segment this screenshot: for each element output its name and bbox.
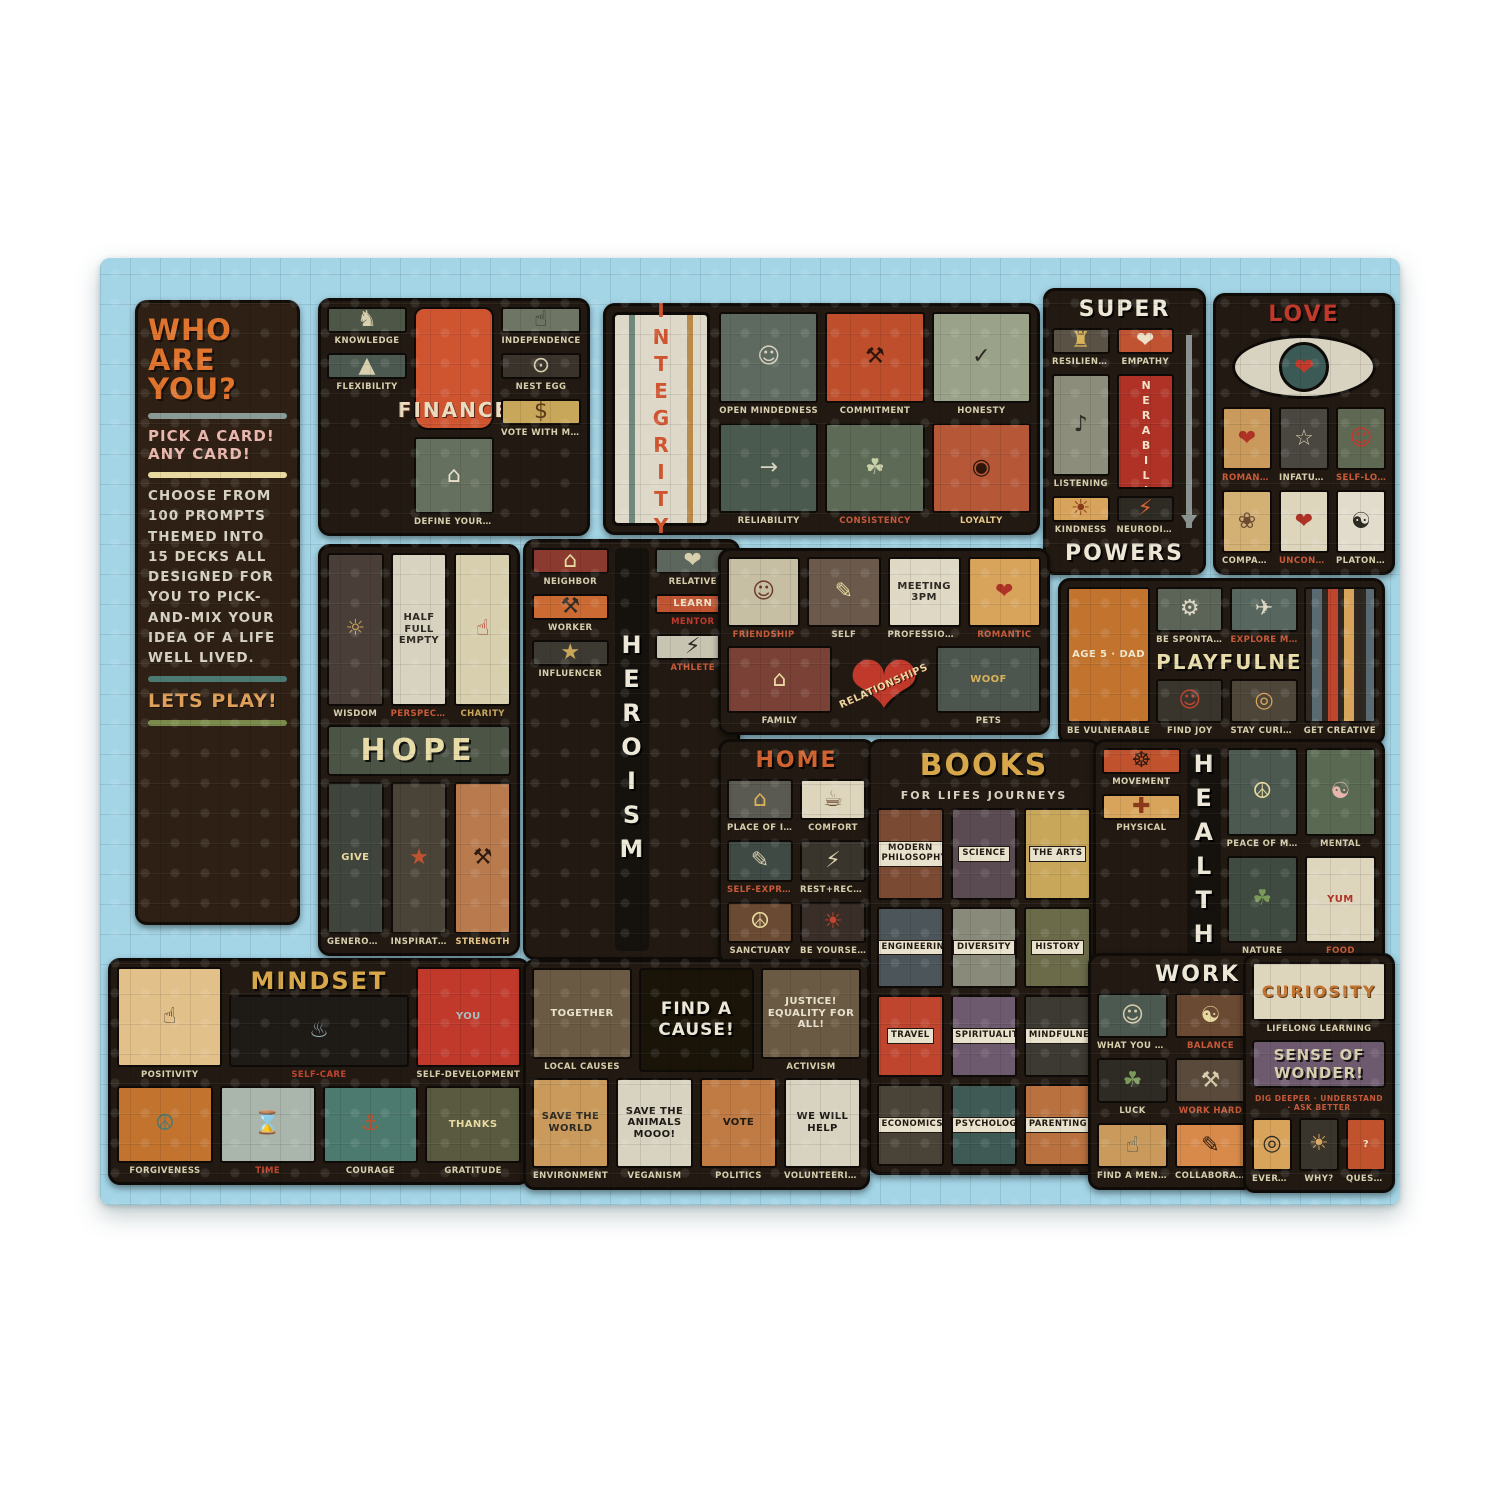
thanks-card: THANKSGRATITUDE — [425, 1086, 521, 1176]
lightbulb-head-icon: ☀ — [1309, 1133, 1329, 1155]
card-label: NEURODIVERSITY — [1117, 522, 1175, 535]
thumbs-up-icon: ☝ — [163, 1006, 176, 1028]
card-label: LOYALTY — [932, 513, 1031, 526]
work-cards: ☺WHAT YOU DO☯BALANCE☘LUCK⚒WORK HARD☝FIND… — [1097, 993, 1246, 1181]
card-text: JUSTICE! EQUALITY FOR ALL! — [763, 994, 859, 1033]
card-art: GIVE — [327, 782, 384, 935]
panel-find-a-cause: TOGETHERLOCAL CAUSES FIND A CAUSE! JUSTI… — [523, 959, 870, 1190]
card-label: TIME — [220, 1163, 316, 1176]
relationships-family-card: ⌂FAMILY — [727, 646, 832, 726]
thumbs-up-badge-icon: ☝ — [501, 307, 581, 333]
two-friends-icon: ☺ — [752, 581, 775, 603]
card-label: BE YOURSELF — [800, 943, 866, 956]
puzzle-title: WHO ARE YOU? — [148, 316, 287, 405]
home-title: HOME — [727, 748, 866, 773]
two-towers-icon: ❀ — [1222, 490, 1272, 553]
you-book-card: YOUSELF-DEVELOPMENT — [416, 967, 521, 1080]
hand-on-heart-icon: ☺ — [1350, 428, 1373, 450]
card: ♞KNOWLEDGE — [327, 307, 407, 346]
card-label: PETS — [936, 713, 1041, 726]
card-art: WE WILL HELP — [784, 1078, 861, 1169]
card-label: COMMITMENT — [825, 403, 924, 416]
heart-couple-icon: ❤ — [968, 557, 1041, 627]
card-label: HONESTY — [932, 403, 1031, 416]
candle-window-icon: ☮ — [1252, 781, 1272, 803]
roller-skate-icon: ⚙ — [1156, 587, 1223, 632]
heroism-title: HEROISM — [615, 548, 649, 951]
card: ☺WHAT YOU DO — [1097, 993, 1168, 1051]
crayons-icon — [1304, 587, 1376, 723]
card-label: QUESTIONS — [1346, 1171, 1386, 1184]
card-label: SANCTUARY — [727, 943, 793, 956]
integrity-cards: ☺OPEN MINDEDNESS⚒COMMITMENT✓HONESTY→RELI… — [719, 312, 1031, 526]
card: ☀BE YOURSELF — [800, 902, 866, 956]
anatomy-icon: ✚ — [1102, 794, 1181, 820]
hug-icon: ❤ — [684, 550, 702, 572]
creature-icon: ♞ — [327, 307, 407, 333]
clover-icon: ☘ — [1123, 1070, 1143, 1092]
card: ❤ROMANTIC — [1222, 407, 1272, 483]
heart-icon: ❤ — [1117, 328, 1175, 354]
card-label: BALANCE — [1175, 1038, 1246, 1051]
panel-curiosity: CURIOSITY LIFELONG LEARNING SENSE OF WON… — [1243, 953, 1395, 1193]
books-shelf: MODERN PHILOSOPHYSCIENCETHE ARTSENGINEER… — [877, 808, 1091, 1166]
hope-top-cards: ☼WISDOMHALF FULL EMPTYPERSPECTIVE☝CHARIT… — [327, 553, 511, 719]
super-body: ♜RESILIENCE❤EMPATHY♪LISTENINGVULNERABILI… — [1052, 328, 1197, 535]
panel-love: LOVE ❤ ❤ROMANTIC☆INFATUATION☺SELF-LOVE❀C… — [1213, 293, 1395, 575]
book-spine: PARENTING — [1024, 1084, 1091, 1166]
card-label: COURAGE — [323, 1163, 419, 1176]
card-text: VOTE — [720, 1115, 757, 1131]
card: ♜RESILIENCE — [1052, 328, 1110, 367]
playfulness-mid-bottom-cards: ☺FIND JOY◎STAY CURIOUS — [1156, 679, 1298, 737]
card-label: VOTE WITH MONEY — [501, 425, 581, 438]
dog-badge-icon: ◉ — [972, 457, 991, 479]
mindset-selfcare-card: ♨SELF-CARE — [229, 995, 408, 1080]
card-label: INDEPENDENCE — [501, 333, 581, 346]
playfulness-left-card: AGE 5 · DADBE VULNERABLE — [1067, 587, 1150, 736]
jigsaw-puzzle: WHO ARE YOU? PICK A CARD! ANY CARD! CHOO… — [100, 258, 1400, 1205]
card-text: GIVE — [338, 850, 372, 866]
bathtub-icon: ♨ — [309, 1020, 329, 1042]
card-text: MODERN PHILOSOPHY — [878, 841, 944, 867]
card-art: THANKS — [425, 1086, 521, 1163]
mountain-climber-icon: ▲ — [327, 353, 407, 379]
card-text: ENGINEERING — [878, 940, 944, 956]
card-label: EVERYTHING — [1252, 1171, 1292, 1184]
head-flower-icon: ☯ — [1331, 781, 1351, 803]
window-neighbor-icon: ⌂ — [563, 550, 577, 572]
curiosity-book-card: CURIOSITY LIFELONG LEARNING — [1252, 962, 1386, 1034]
home-cards: ⌂PLACE OF INTIMACY☕COMFORT✎SELF-EXPRESSI… — [727, 779, 866, 956]
weightlifter-icon: ⚒ — [473, 847, 493, 869]
nest-egg-icon: ⊙ — [532, 355, 550, 377]
tree-icon: ☘ — [865, 457, 885, 479]
card: ✎SELF-EXPRESSION — [727, 840, 793, 894]
curiosity-bottom-cards: ◎EVERYTHING☀WHY??QUESTIONS — [1252, 1118, 1386, 1184]
me-book-icon: ✎ — [835, 581, 853, 603]
curiosity-banner: SENSE OF WONDER! — [1252, 1040, 1386, 1088]
card-label: FIND A MENTOR — [1097, 1168, 1168, 1181]
robot-icon: ☺ — [1156, 679, 1223, 724]
card-art: HISTORY — [1024, 907, 1091, 989]
playfulness-mid-top-cards: ⚙BE SPONTANEOUS✈EXPLORE MORE — [1156, 587, 1298, 645]
card: ☯MENTAL — [1305, 748, 1376, 849]
card-art: ? — [1346, 1118, 1386, 1171]
card-label: OPEN MINDEDNESS — [719, 403, 818, 416]
panel-mindset: ☝POSITIVITY MINDSET ♨SELF-CARE YOUSELF-D… — [108, 958, 530, 1185]
card-label: UNCONDITIONAL — [1279, 553, 1329, 566]
star-icon: ★ — [391, 782, 448, 935]
vote-card: VOTEPOLITICS — [700, 1078, 777, 1182]
card-art: ECONOMICS — [877, 1084, 944, 1166]
card: ☺FRIENDSHIP — [727, 557, 800, 640]
card-label: COMPANIONSHIP — [1222, 553, 1272, 566]
city-building-icon: ⌂ — [727, 779, 793, 820]
anatomy-icon: ✚ — [1132, 796, 1150, 818]
fist-icon: ⚒ — [825, 312, 924, 403]
hammer-icon: ⚒ — [1201, 1070, 1221, 1092]
card-text: VULNERABILITY — [1136, 374, 1155, 489]
card-text: THANKS — [446, 1117, 501, 1133]
panel-integrity: INTEGRITY ☺OPEN MINDEDNESS⚒COMMITMENT✓HO… — [603, 303, 1040, 535]
heart-bag-icon: ❤ — [1279, 490, 1329, 553]
clock-icon: ⌛ — [254, 1113, 281, 1135]
card: ☯BALANCE — [1175, 993, 1246, 1051]
card: ☮FORGIVENESS — [117, 1086, 213, 1176]
helping-hand-icon: ☀ — [1052, 496, 1110, 522]
book-spine: ENGINEERING — [877, 907, 944, 989]
card-label: FIND JOY — [1156, 723, 1223, 736]
card-label: STRENGTH — [454, 934, 511, 947]
card: ✚PHYSICAL — [1102, 794, 1181, 833]
book-spine: ECONOMICS — [877, 1084, 944, 1166]
relationships-heart: ❤ RELATIONSHIPS — [839, 646, 929, 726]
question-card: ?QUESTIONS — [1346, 1118, 1386, 1184]
card-art: SCIENCE — [951, 808, 1018, 900]
card-art: ENGINEERING — [877, 907, 944, 989]
coin-icon: $ — [534, 401, 548, 423]
city-building-icon: ⌂ — [753, 789, 767, 811]
card: ★INFLUENCER — [532, 640, 609, 679]
card-label: PLACE OF INTIMACY — [727, 820, 793, 833]
card-label: POSITIVITY — [117, 1067, 222, 1080]
book-spine: SCIENCE — [951, 808, 1018, 900]
card-label: CHARITY — [454, 706, 511, 719]
card: ☺SELF-LOVE — [1336, 407, 1386, 483]
open-head-icon: ☺ — [757, 346, 780, 368]
card-text: YUM — [1324, 892, 1357, 908]
cause-activism-card: JUSTICE! EQUALITY FOR ALL!ACTIVISM — [761, 968, 861, 1072]
robot-icon: ☺ — [1178, 690, 1201, 712]
card-label: CONSISTENCY — [825, 513, 924, 526]
card: ◎EVERYTHING — [1252, 1118, 1292, 1184]
person-icon: ☺ — [1097, 993, 1168, 1038]
card-art: HALF FULL EMPTY — [391, 553, 448, 706]
mindset-bottom-cards: ☮FORGIVENESS⌛TIME⚓COURAGETHANKSGRATITUDE — [117, 1086, 521, 1176]
book-spine: TRAVEL — [877, 995, 944, 1077]
card-label: INFLUENCER — [532, 666, 609, 679]
card: ☝INDEPENDENCE — [501, 307, 581, 346]
worker-icon: ⚒ — [532, 594, 609, 620]
card-text: TRAVEL — [887, 1028, 934, 1044]
lightning-icon: ⚡ — [1138, 498, 1153, 520]
pine-trees-icon: ☘ — [1227, 856, 1298, 944]
love-title: LOVE — [1222, 302, 1386, 327]
card-label: ROMANTIC — [968, 627, 1041, 640]
card-art: VOTE — [700, 1078, 777, 1169]
hearth-icon: ☀ — [800, 902, 866, 943]
panel-work: WORK ☺WHAT YOU DO☯BALANCE☘LUCK⚒WORK HARD… — [1088, 953, 1255, 1190]
arrow-icon: → — [759, 457, 777, 479]
abstract-pattern-icon: ☯ — [1351, 511, 1371, 533]
card-label: SELF-EXPRESSION — [727, 882, 793, 895]
book-spine: MINDFULNESS — [1024, 995, 1091, 1077]
star-icon: ★ — [409, 847, 429, 869]
relationships-pets-card: WOOFPETS — [936, 646, 1041, 726]
health-left-cards: ☸MOVEMENT✚PHYSICAL — [1102, 748, 1181, 956]
raised-hands-icon: ☝ — [454, 553, 511, 706]
card-text: TOGETHER — [547, 1006, 616, 1022]
card-label: LOCAL CAUSES — [532, 1059, 632, 1072]
card-label: WISDOM — [327, 706, 384, 719]
relationships-bottom-row: ⌂FAMILY ❤ RELATIONSHIPS WOOFPETS — [727, 646, 1041, 726]
card-label: FORGIVENESS — [117, 1163, 213, 1176]
card-text: WE WILL HELP — [786, 1109, 859, 1136]
card-label: PEACE OF MIND — [1227, 836, 1298, 849]
card-label: VOLUNTEERING — [784, 1168, 861, 1181]
card-text: SCIENCE — [958, 846, 1009, 862]
card: ⚒WORK HARD — [1175, 1058, 1246, 1116]
book-spine: THE ARTS — [1024, 808, 1091, 900]
crayons-card: GET CREATIVE — [1304, 587, 1376, 736]
integrity-title-card: INTEGRITY — [612, 312, 710, 526]
card-text: PSYCHOLOGY — [951, 1117, 1017, 1133]
card-label: GET CREATIVE — [1304, 723, 1376, 736]
card-label: MOVEMENT — [1102, 774, 1181, 787]
panel-hope: ☼WISDOMHALF FULL EMPTYPERSPECTIVE☝CHARIT… — [318, 544, 520, 956]
mindset-title: MINDSET — [229, 967, 408, 995]
card-label: EXPLORE MORE — [1230, 632, 1297, 645]
card: ☘LUCK — [1097, 1058, 1168, 1116]
finance-title: FINANCE — [414, 307, 494, 430]
candle-window-icon: ☮ — [1227, 748, 1298, 836]
mindset-center-stack: MINDSET ♨SELF-CARE — [229, 967, 408, 1080]
battery-icon: ⚡ — [825, 850, 840, 872]
card-label: LISTENING — [1052, 476, 1110, 489]
card: ☮PEACE OF MIND — [1227, 748, 1298, 849]
battery-icon: ⚡ — [800, 840, 866, 881]
card-art: SAVE THE ANIMALS MOOO! — [616, 1078, 693, 1169]
card-art: AGE 5 · DAD — [1067, 587, 1150, 723]
sanctuary-icon: ☮ — [727, 902, 793, 943]
house-icon: ⌂ — [414, 437, 494, 514]
card-text: MINDFULNESS — [1025, 1028, 1091, 1044]
card-label: STAY CURIOUS — [1230, 723, 1297, 736]
influencer-icon: ★ — [560, 642, 580, 664]
binoculars-icon: ◎ — [1255, 690, 1274, 712]
panel-finance: ♞KNOWLEDGE▲FLEXIBILITY FINANCE ⌂DEFINE Y… — [318, 298, 590, 536]
card-label: PERSPECTIVE — [391, 706, 448, 719]
card-text: AGE 5 · DAD — [1069, 647, 1148, 663]
cause-bottom-cards: SAVE THE WORLDENVIRONMENTSAVE THE ANIMAL… — [532, 1078, 861, 1182]
wheel-icon: ☼ — [327, 553, 384, 706]
intro-subtitle: PICK A CARD! ANY CARD! — [148, 427, 287, 465]
card: ⚙BE SPONTANEOUS — [1156, 587, 1223, 645]
family-portrait-icon: ⌂ — [773, 669, 787, 691]
perspective-card: HALF FULL EMPTYPERSPECTIVE — [391, 553, 448, 719]
panel-health: ☸MOVEMENT✚PHYSICAL HEALTH ☮PEACE OF MIND… — [1093, 739, 1385, 965]
runner-icon: ⚡ — [685, 636, 700, 658]
playfulness-middle: ⚙BE SPONTANEOUS✈EXPLORE MORE PLAYFULNESS… — [1156, 587, 1298, 736]
two-friends-icon: ☺ — [727, 557, 800, 627]
bicycle-icon: ☸ — [1102, 748, 1181, 774]
family-portrait-icon: ⌂ — [727, 646, 832, 713]
open-head-icon: ☺ — [719, 312, 818, 403]
card: ☕COMFORT — [800, 779, 866, 833]
card: ☝CHARITY — [454, 553, 511, 719]
card-text: HISTORY — [1031, 940, 1083, 956]
card-label: WORK HARD — [1175, 1103, 1246, 1116]
card-label: WORKER — [532, 620, 609, 633]
card-label: INFATUATION — [1279, 470, 1329, 483]
sanctuary-icon: ☮ — [750, 911, 770, 933]
house-icon: ⌂ — [447, 465, 461, 487]
card: ✎SELF — [807, 557, 880, 640]
card-text: ? — [1360, 1137, 1372, 1153]
book-spine: HISTORY — [1024, 907, 1091, 989]
mug-icon: ☕ — [800, 779, 866, 820]
card: ⌂FAMILY — [727, 646, 832, 726]
mentor-figures-icon: ☝ — [1097, 1123, 1168, 1168]
card: ☼WISDOM — [327, 553, 384, 719]
volunteering-card: WE WILL HELPVOLUNTEERING — [784, 1078, 861, 1182]
mindset-selfdev-card: YOUSELF-DEVELOPMENT — [416, 967, 521, 1080]
card: ☆INFATUATION — [1279, 407, 1329, 483]
card-text: SPIRITUALITY — [951, 1028, 1017, 1044]
card: ☘CONSISTENCY — [825, 423, 924, 527]
card: ✓HONESTY — [932, 312, 1031, 416]
balance-icon: ☯ — [1175, 993, 1246, 1038]
card: ❤UNCONDITIONAL — [1279, 490, 1329, 566]
card: ⊙NEST EGG — [501, 353, 581, 392]
card-text: THE ARTS — [1029, 846, 1087, 862]
card: ♪LISTENING — [1052, 374, 1110, 489]
card: ☀KINDNESS — [1052, 496, 1110, 535]
eye-heart-icon: ❤ — [1279, 342, 1329, 392]
finance-center-cards: ⌂DEFINE YOUR SUCCESS — [414, 437, 494, 527]
mug-icon: ☕ — [823, 789, 843, 811]
card: ✎COLLABORATE — [1175, 1123, 1246, 1181]
card-art: WOOF — [936, 646, 1041, 713]
card-art: PSYCHOLOGY — [951, 1084, 1018, 1166]
professional-card: MEETING 3PMPROFESSIONAL — [888, 557, 961, 640]
card-text: PARENTING — [1025, 1117, 1091, 1133]
ladder-heart-icon: ☆ — [1279, 407, 1329, 470]
card-art: TOGETHER — [532, 968, 632, 1059]
book-spine: SPIRITUALITY — [951, 995, 1018, 1077]
thumbs-up-badge-icon: ☝ — [534, 309, 547, 331]
clock-icon: ⌛ — [220, 1086, 316, 1163]
wheel-icon: ☼ — [345, 618, 365, 640]
card-art: THE ARTS — [1024, 808, 1091, 900]
book-spine: DIVERSITY — [951, 907, 1018, 989]
playfulness-title: PLAYFULNESS — [1156, 650, 1298, 674]
card-art: TRAVEL — [877, 995, 944, 1077]
ear-icon: ♪ — [1052, 374, 1110, 476]
intro-body: CHOOSE FROM 100 PROMPTS THEMED INTO 15 D… — [148, 486, 287, 668]
card-label: WHAT YOU DO — [1097, 1038, 1168, 1051]
creature-icon: ♞ — [357, 309, 377, 331]
card-text: SAVE THE WORLD — [534, 1109, 607, 1136]
rocket-icon: ✈ — [1230, 587, 1297, 632]
divider — [148, 676, 287, 682]
panel-books: BOOKS FOR LIFES JOURNEYS MODERN PHILOSOP… — [868, 739, 1100, 1175]
book-spine: PSYCHOLOGY — [951, 1084, 1018, 1166]
panel-relationships: ☺FRIENDSHIP✎SELFMEETING 3PMPROFESSIONAL❤… — [718, 548, 1050, 735]
card: ☺FIND JOY — [1156, 679, 1223, 737]
super-cards: ♜RESILIENCE❤EMPATHY♪LISTENINGVULNERABILI… — [1052, 328, 1174, 535]
love-cards: ❤ROMANTIC☆INFATUATION☺SELF-LOVE❀COMPANIO… — [1222, 407, 1386, 566]
card: ◉LOYALTY — [932, 423, 1031, 527]
card: ☘NATURE — [1227, 856, 1298, 957]
card-text: MEETING 3PM — [890, 579, 959, 606]
card-label: NEIGHBOR — [532, 574, 609, 587]
heart-bag-icon: ❤ — [1295, 511, 1313, 533]
card-label: GENEROSITY — [327, 934, 384, 947]
influencer-icon: ★ — [532, 640, 609, 666]
finance-right-column: ☝INDEPENDENCE⊙NEST EGG$VOTE WITH MONEY — [501, 307, 581, 527]
coin-icon: $ — [501, 399, 581, 425]
card-label: MENTAL — [1305, 836, 1376, 849]
panel-super-powers: SUPER ♜RESILIENCE❤EMPATHY♪LISTENINGVULNE… — [1043, 288, 1206, 575]
card-art: MEETING 3PM — [888, 557, 961, 627]
finance-left-column: ♞KNOWLEDGE▲FLEXIBILITY — [327, 307, 407, 527]
health-title: HEALTH — [1187, 748, 1221, 956]
binoculars-icon: ◎ — [1230, 679, 1297, 724]
intro-footer: LETS PLAY! — [148, 690, 287, 712]
card-art: YUM — [1305, 856, 1376, 944]
card-label: ACTIVISM — [761, 1059, 861, 1072]
shield-icon: ♜ — [1071, 330, 1091, 352]
hand-on-heart-icon: ☺ — [1336, 407, 1386, 470]
bicycle-icon: ☸ — [1131, 750, 1151, 772]
hammer-icon: ⚒ — [1175, 1058, 1246, 1103]
worker-icon: ⚒ — [560, 596, 580, 618]
mindset-top-row: ☝POSITIVITY MINDSET ♨SELF-CARE YOUSELF-D… — [117, 967, 521, 1080]
justice-card: JUSTICE! EQUALITY FOR ALL!ACTIVISM — [761, 968, 861, 1072]
hope-bottom-cards: GIVEGENEROSITY★INSPIRATION⚒STRENGTH — [327, 782, 511, 948]
nest-egg-icon: ⊙ — [501, 353, 581, 379]
card-text: WOOF — [967, 672, 1009, 688]
card-label: INSPIRATION — [391, 934, 448, 947]
card: ☮SANCTUARY — [727, 902, 793, 956]
anchor-icon: ⚓ — [323, 1086, 419, 1163]
vulnerability-card: VULNERABILITY — [1117, 374, 1175, 489]
finance-center-column: FINANCE ⌂DEFINE YOUR SUCCESS — [414, 307, 494, 527]
hand-pencil-icon: ✎ — [727, 840, 793, 881]
card: ▲FLEXIBILITY — [327, 353, 407, 392]
card-art: SPIRITUALITY — [951, 995, 1018, 1077]
card-label: DEFINE YOUR SUCCESS — [414, 514, 494, 527]
pets-card: WOOFPETS — [936, 646, 1041, 726]
card-label: POLITICS — [700, 1168, 777, 1181]
relationships-top-cards: ☺FRIENDSHIP✎SELFMEETING 3PMPROFESSIONAL❤… — [727, 557, 1041, 640]
card-label: GRATITUDE — [425, 1163, 521, 1176]
hand-pencil-icon: ✎ — [751, 850, 769, 872]
arrow-icon: → — [719, 423, 818, 514]
super-title-bottom: POWERS — [1052, 541, 1197, 566]
